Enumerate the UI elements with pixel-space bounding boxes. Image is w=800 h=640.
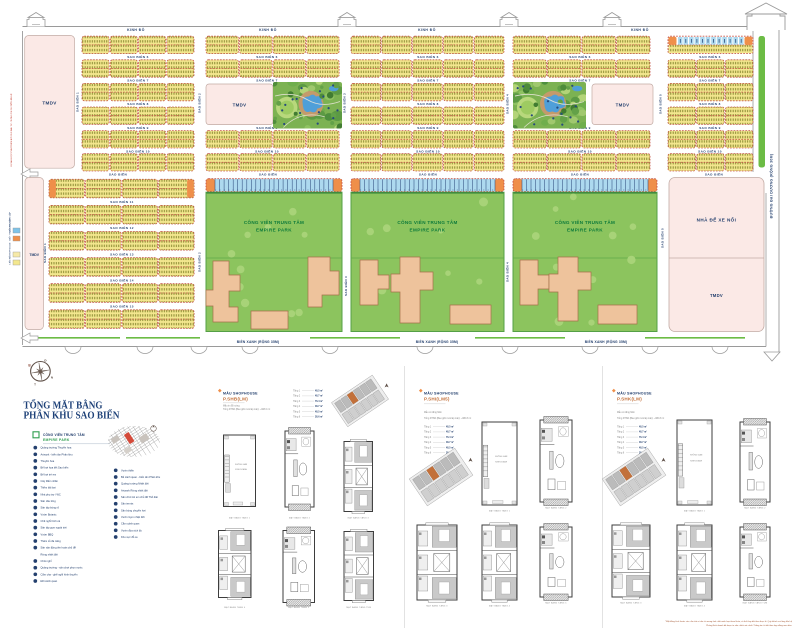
- svg-text:Sân chơi trẻ em chủ đề Thổ dân: Sân chơi trẻ em chủ đề Thổ dân: [121, 495, 159, 499]
- svg-text:PHÂN KHU SAO BIỂN: PHÂN KHU SAO BIỂN: [24, 409, 120, 422]
- svg-text:Quảng trường Thuyền hoa: Quảng trường Thuyền hoa: [41, 446, 72, 450]
- svg-text:Vườn BBQ: Vườn BBQ: [41, 532, 54, 536]
- svg-text:KINH DOANH: KINH DOANH: [690, 460, 703, 463]
- svg-text:Artwork Rừng nhiệt đới: Artwork Rừng nhiệt đới: [121, 488, 148, 492]
- svg-text:SAO BIỂN 8: SAO BIỂN 8: [417, 101, 439, 106]
- svg-text:Rừng nhiệt đới: Rừng nhiệt đới: [41, 552, 59, 556]
- svg-text:SAO BIỂN 6: SAO BIỂN 6: [569, 54, 591, 59]
- svg-text:Mẫu in đối xứng: Mẫu in đối xứng: [223, 404, 240, 407]
- svg-text:Tầng 2: Tầng 2: [424, 431, 432, 434]
- svg-text:KINH ĐÔ: KINH ĐÔ: [418, 27, 436, 32]
- svg-text:KINH ĐÔ: KINH ĐÔ: [259, 27, 277, 32]
- svg-text:MẪU SHOPHOUSE: MẪU SHOPHOUSE: [424, 390, 459, 395]
- svg-text:SAO BIỂN: SAO BIỂN: [705, 171, 724, 176]
- svg-text:Thảm cỏ đa năng: Thảm cỏ đa năng: [41, 539, 62, 543]
- svg-text:SAO BIỂN 9: SAO BIỂN 9: [699, 125, 721, 130]
- svg-text:MẶT BẰNG TẦNG 3: MẶT BẰNG TẦNG 3: [426, 605, 448, 608]
- svg-text:SAO BIỂN 10: SAO BIỂN 10: [126, 148, 150, 153]
- svg-text:SAO BIỂN 5: SAO BIỂN 5: [658, 94, 663, 114]
- svg-text:BIỂN XANH (RỘNG 35M): BIỂN XANH (RỘNG 35M): [237, 339, 279, 344]
- svg-text:Cây điểm nhấn: Cây điểm nhấn: [41, 479, 59, 483]
- svg-text:Vườn Botanic: Vườn Botanic: [41, 512, 58, 516]
- svg-text:EMPIRE PARK: EMPIRE PARK: [567, 228, 603, 233]
- svg-text:CÔNG VIÊN TRUNG TÂM: CÔNG VIÊN TRUNG TÂM: [397, 218, 457, 225]
- svg-text:Bể cảnh quan - biển tân Phân k: Bể cảnh quan - biển tân Phân khu: [121, 475, 161, 479]
- svg-text:SAO BIỂN 3: SAO BIỂN 3: [343, 276, 348, 296]
- svg-text:Thuyền hoa: Thuyền hoa: [41, 459, 55, 463]
- svg-text:MẪU SHOPHOUSE: MẪU SHOPHOUSE: [617, 390, 652, 395]
- svg-text:SAO BIỂN 14: SAO BIỂN 14: [110, 277, 134, 282]
- svg-text:MẶT BẰNG TẦNG 5: MẶT BẰNG TẦNG 5: [545, 602, 567, 605]
- svg-text:SAO BIỂN 6: SAO BIỂN 6: [699, 54, 721, 59]
- svg-text:Thềm bãi bơi: Thềm bãi bơi: [41, 486, 57, 490]
- svg-text:MẶT BẰNG TẦNG 4: MẶT BẰNG TẦNG 4: [489, 605, 511, 608]
- svg-text:MẶT BẰNG TẦNG 4: MẶT BẰNG TẦNG 4: [224, 606, 246, 609]
- svg-text:SAO BIỂN: SAO BIỂN: [419, 171, 438, 176]
- svg-text:SAO BIỂN 7: SAO BIỂN 7: [699, 78, 721, 83]
- svg-text:Vườn đùa xích đu: Vườn đùa xích đu: [121, 528, 142, 532]
- svg-text:Tầng 6: Tầng 6: [617, 452, 625, 455]
- svg-text:Tầng 5: Tầng 5: [424, 446, 432, 449]
- svg-text:Bể bơi họa tiết Sao biển: Bể bơi họa tiết Sao biển: [41, 466, 69, 470]
- svg-text:SAO BIỂN 10: SAO BIỂN 10: [255, 148, 279, 153]
- svg-text:BIỂN XANH (RỘNG 35M): BIỂN XANH (RỘNG 35M): [416, 339, 458, 344]
- svg-text:SAO BIỂN 15: SAO BIỂN 15: [110, 304, 134, 309]
- svg-text:TMDV: TMDV: [29, 253, 39, 257]
- svg-text:Tầng 3: Tầng 3: [617, 436, 625, 439]
- svg-text:SHOPHOUSE: SHOPHOUSE: [10, 242, 12, 257]
- svg-text:CÔNG VIÊN TRUNG TÂM: CÔNG VIÊN TRUNG TÂM: [244, 218, 304, 225]
- svg-text:Tầng 1: Tầng 1: [424, 426, 432, 429]
- svg-text:P.SHI(LM5): P.SHI(LM5): [424, 397, 450, 402]
- svg-text:SAO BIỂN 7: SAO BIỂN 7: [417, 78, 439, 83]
- svg-text:N: N: [51, 376, 53, 380]
- svg-text:MẶT BẰNG TẦNG 3: MẶT BẰNG TẦNG 3: [620, 602, 642, 605]
- svg-text:KHÔNG GIAN: KHÔNG GIAN: [495, 455, 508, 458]
- svg-text:Bể bơi trẻ em: Bể bơi trẻ em: [41, 472, 57, 476]
- svg-text:Tầng 3: Tầng 3: [424, 436, 432, 439]
- svg-text:SAO BIỂN 2: SAO BIỂN 2: [196, 252, 201, 272]
- svg-text:TMDV: TMDV: [710, 293, 723, 298]
- svg-text:Quảng trường - sân chơi phun n: Quảng trường - sân chơi phun nước: [41, 566, 84, 570]
- svg-text:EMPIRE PARK: EMPIRE PARK: [410, 228, 446, 233]
- svg-text:Sân cầu lông: Sân cầu lông: [41, 499, 57, 503]
- svg-text:ĐƯỜNG ĐẠI DƯƠNG (RỘNG 30M): ĐƯỜNG ĐẠI DƯƠNG (RỘNG 30M): [769, 154, 774, 219]
- svg-text:SAO BIỂN: SAO BIỂN: [571, 171, 590, 176]
- svg-text:Tầng 4: Tầng 4: [293, 405, 301, 408]
- svg-text:MẶT BẰNG TẦNG 1: MẶT BẰNG TẦNG 1: [229, 517, 251, 520]
- svg-text:P.SHB(LM): P.SHB(LM): [223, 397, 248, 402]
- svg-text:SAO BIỂN 10: SAO BIỂN 10: [698, 148, 722, 153]
- svg-text:Quảng trường Nhiệt đới: Quảng trường Nhiệt đới: [121, 482, 149, 486]
- svg-text:Tổng DTSD (Bao gồm tum/áp mái): Tổng DTSD (Bao gồm tum/áp mái): ~408.0 m…: [223, 408, 270, 411]
- svg-text:Tầng 1: Tầng 1: [293, 390, 301, 393]
- svg-text:Sân tập gym ngoài trời: Sân tập gym ngoài trời: [41, 526, 68, 530]
- svg-text:DỰ ÁN ĐƯỢC PHÁT TRIỂN BỞI CHỦ: DỰ ÁN ĐƯỢC PHÁT TRIỂN BỞI CHỦ ĐẦU TƯ - T…: [10, 93, 13, 167]
- svg-text:MẶT BẰNG TẦNG TUM: MẶT BẰNG TẦNG TUM: [743, 602, 768, 605]
- svg-text:SAO BIỂN 7: SAO BIỂN 7: [569, 78, 591, 83]
- svg-text:Tầng 4: Tầng 4: [424, 441, 432, 444]
- svg-text:T: T: [34, 383, 36, 387]
- svg-text:*Mặt bằng kích thước các căn n: *Mặt bằng kích thước các căn nhà ở trên …: [665, 620, 793, 623]
- svg-text:SAO BIỂN 6: SAO BIỂN 6: [417, 54, 439, 59]
- svg-text:Đồi cảnh quan: Đồi cảnh quan: [41, 579, 58, 583]
- svg-text:Tầng 5: Tầng 5: [293, 410, 301, 413]
- svg-text:Tổng DTSD (Bao gồm tum/áp mái): Tổng DTSD (Bao gồm tum/áp mái): ~480.8 m…: [424, 417, 471, 420]
- svg-text:Vườn Gym nhiệt đới: Vườn Gym nhiệt đới: [121, 515, 145, 519]
- svg-text:SAO BIỂN 10: SAO BIỂN 10: [568, 148, 592, 153]
- svg-text:SAO BIỂN 9: SAO BIỂN 9: [127, 125, 149, 130]
- svg-text:MẶT BẰNG TẦNG 4: MẶT BẰNG TẦNG 4: [684, 605, 706, 608]
- svg-text:Phòng Kinh doanh để được tư vấ: Phòng Kinh doanh để được tư vấn chính xá…: [706, 624, 792, 627]
- svg-text:Tầng 1: Tầng 1: [617, 426, 625, 429]
- svg-text:SAO BIỂN 4: SAO BIỂN 4: [505, 262, 510, 282]
- svg-text:Mẫu có tầng hầm: Mẫu có tầng hầm: [617, 411, 635, 414]
- svg-text:KHÔNG GIAN: KHÔNG GIAN: [235, 463, 248, 466]
- svg-text:NHÀ ĐỂ XE NỔI: NHÀ ĐỂ XE NỔI: [697, 217, 737, 223]
- svg-text:SAO BIỂN 1: SAO BIỂN 1: [74, 92, 79, 112]
- svg-text:MẶT BẰNG TẦNG TUM: MẶT BẰNG TẦNG TUM: [346, 606, 371, 609]
- svg-text:KINH DOANH: KINH DOANH: [495, 461, 508, 464]
- svg-text:MẶT BẰNG TẦNG 2: MẶT BẰNG TẦNG 2: [545, 507, 567, 510]
- svg-text:Sân bóng chuyền hơi: Sân bóng chuyền hơi: [121, 508, 146, 512]
- svg-text:Artwork - biển tân Phân khu: Artwork - biển tân Phân khu: [41, 452, 74, 456]
- svg-text:SAO BIỂN 11: SAO BIỂN 11: [110, 199, 134, 204]
- svg-text:SAO BIỂN 7: SAO BIỂN 7: [256, 78, 278, 83]
- svg-text:P.SHK(LM): P.SHK(LM): [617, 397, 642, 402]
- svg-text:MẶT BẰNG TẦNG 2: MẶT BẰNG TẦNG 2: [289, 517, 311, 520]
- svg-text:Tầng 5: Tầng 5: [617, 446, 625, 449]
- svg-text:MẶT BẰNG TẦNG 1: MẶT BẰNG TẦNG 1: [489, 510, 511, 513]
- svg-text:SAO BIỂN: SAO BIỂN: [109, 171, 128, 176]
- svg-text:KHÔNG GIAN: KHÔNG GIAN: [690, 454, 703, 457]
- svg-text:SAO BIỂN 1: SAO BIỂN 1: [42, 243, 47, 263]
- svg-text:SAO BIỂN 7: SAO BIỂN 7: [127, 78, 149, 83]
- svg-text:TMDV: TMDV: [233, 103, 247, 108]
- svg-text:BIỆT THỰ SONG LẬP: BIỆT THỰ SONG LẬP: [9, 218, 12, 241]
- svg-text:BIỂN XANH (RỘNG 35M): BIỂN XANH (RỘNG 35M): [585, 339, 627, 344]
- svg-text:Tổng DTSD (Bao gồm tum/áp mái): Tổng DTSD (Bao gồm tum/áp mái): ~480.8 m…: [617, 417, 664, 420]
- svg-text:SAO BIỂN 12: SAO BIỂN 12: [110, 225, 134, 230]
- svg-text:MẪU SHOPHOUSE: MẪU SHOPHOUSE: [223, 390, 258, 395]
- svg-text:SAO BIỂN 8: SAO BIỂN 8: [699, 101, 721, 106]
- svg-text:TMDV: TMDV: [42, 101, 57, 106]
- svg-text:SAO BIỂN 6: SAO BIỂN 6: [256, 54, 278, 59]
- svg-text:MẶT BẰNG TẦNG 3: MẶT BẰNG TẦNG 3: [348, 517, 370, 520]
- svg-text:Tầng 2: Tầng 2: [617, 431, 625, 434]
- svg-text:Sân tennis: Sân tennis: [121, 502, 134, 506]
- svg-text:Sân tập bóng rổ: Sân tập bóng rổ: [41, 506, 60, 510]
- svg-text:SAO BIỂN: SAO BIỂN: [259, 171, 278, 176]
- svg-text:KINH DOANH: KINH DOANH: [235, 468, 248, 471]
- svg-text:Tầng 2: Tầng 2: [293, 395, 301, 398]
- svg-text:SAO BIỂN 3: SAO BIỂN 3: [342, 93, 347, 113]
- svg-text:CÔNG VIÊN TRUNG TÂM: CÔNG VIÊN TRUNG TÂM: [555, 218, 615, 225]
- svg-text:SAO BIỂN 6: SAO BIỂN 6: [127, 54, 149, 59]
- svg-text:Tầng 6: Tầng 6: [424, 452, 432, 455]
- svg-text:SAO BIỂN 2: SAO BIỂN 2: [196, 93, 201, 113]
- svg-text:SAO BIỂN 9: SAO BIỂN 9: [417, 125, 439, 130]
- svg-text:MẶT BẰNG TẦNG 2: MẶT BẰNG TẦNG 2: [744, 507, 766, 510]
- svg-text:SAO BIỂN 8: SAO BIỂN 8: [127, 101, 149, 106]
- svg-text:EMPIRE PARK: EMPIRE PARK: [43, 438, 70, 442]
- svg-text:Vườn thiền: Vườn thiền: [121, 468, 135, 472]
- svg-text:Chòi nghỉ: Chòi nghỉ: [41, 559, 52, 563]
- svg-text:Tầng 4: Tầng 4: [617, 441, 625, 444]
- svg-text:EMPIRE PARK: EMPIRE PARK: [256, 228, 292, 233]
- svg-text:KINH ĐÔ: KINH ĐÔ: [127, 27, 145, 32]
- svg-text:MẶT BẰNG TẦNG 5: MẶT BẰNG TẦNG 5: [288, 606, 310, 609]
- svg-text:Tầng 3: Tầng 3: [293, 400, 301, 403]
- svg-text:SAO BIỂN 10: SAO BIỂN 10: [416, 148, 440, 153]
- svg-text:Mẫu có tầng hầm: Mẫu có tầng hầm: [424, 411, 442, 414]
- svg-text:Nhà phụ trợ / WC: Nhà phụ trợ / WC: [41, 492, 61, 496]
- svg-text:SAO BIỂN 5: SAO BIỂN 5: [659, 228, 664, 248]
- svg-text:KINH ĐÔ: KINH ĐÔ: [631, 27, 649, 32]
- svg-text:CÔNG VIÊN TRUNG TÂM: CÔNG VIÊN TRUNG TÂM: [43, 432, 85, 437]
- svg-text:Chế nghỉ hình cá: Chế nghỉ hình cá: [41, 519, 61, 523]
- svg-text:Sân vận động tên hoàn chủ đề: Sân vận động tên hoàn chủ đề: [41, 546, 77, 550]
- svg-text:Tầng 6: Tầng 6: [293, 416, 301, 419]
- svg-text:LIỀN KỀ: LIỀN KỀ: [9, 256, 12, 265]
- svg-text:SAO BIỂN 13: SAO BIỂN 13: [110, 251, 134, 256]
- svg-text:TMDV: TMDV: [616, 103, 630, 108]
- svg-text:MẶT BẰNG TẦNG 1: MẶT BẰNG TẦNG 1: [684, 510, 706, 513]
- svg-text:SAO BIỂN 4: SAO BIỂN 4: [505, 94, 510, 114]
